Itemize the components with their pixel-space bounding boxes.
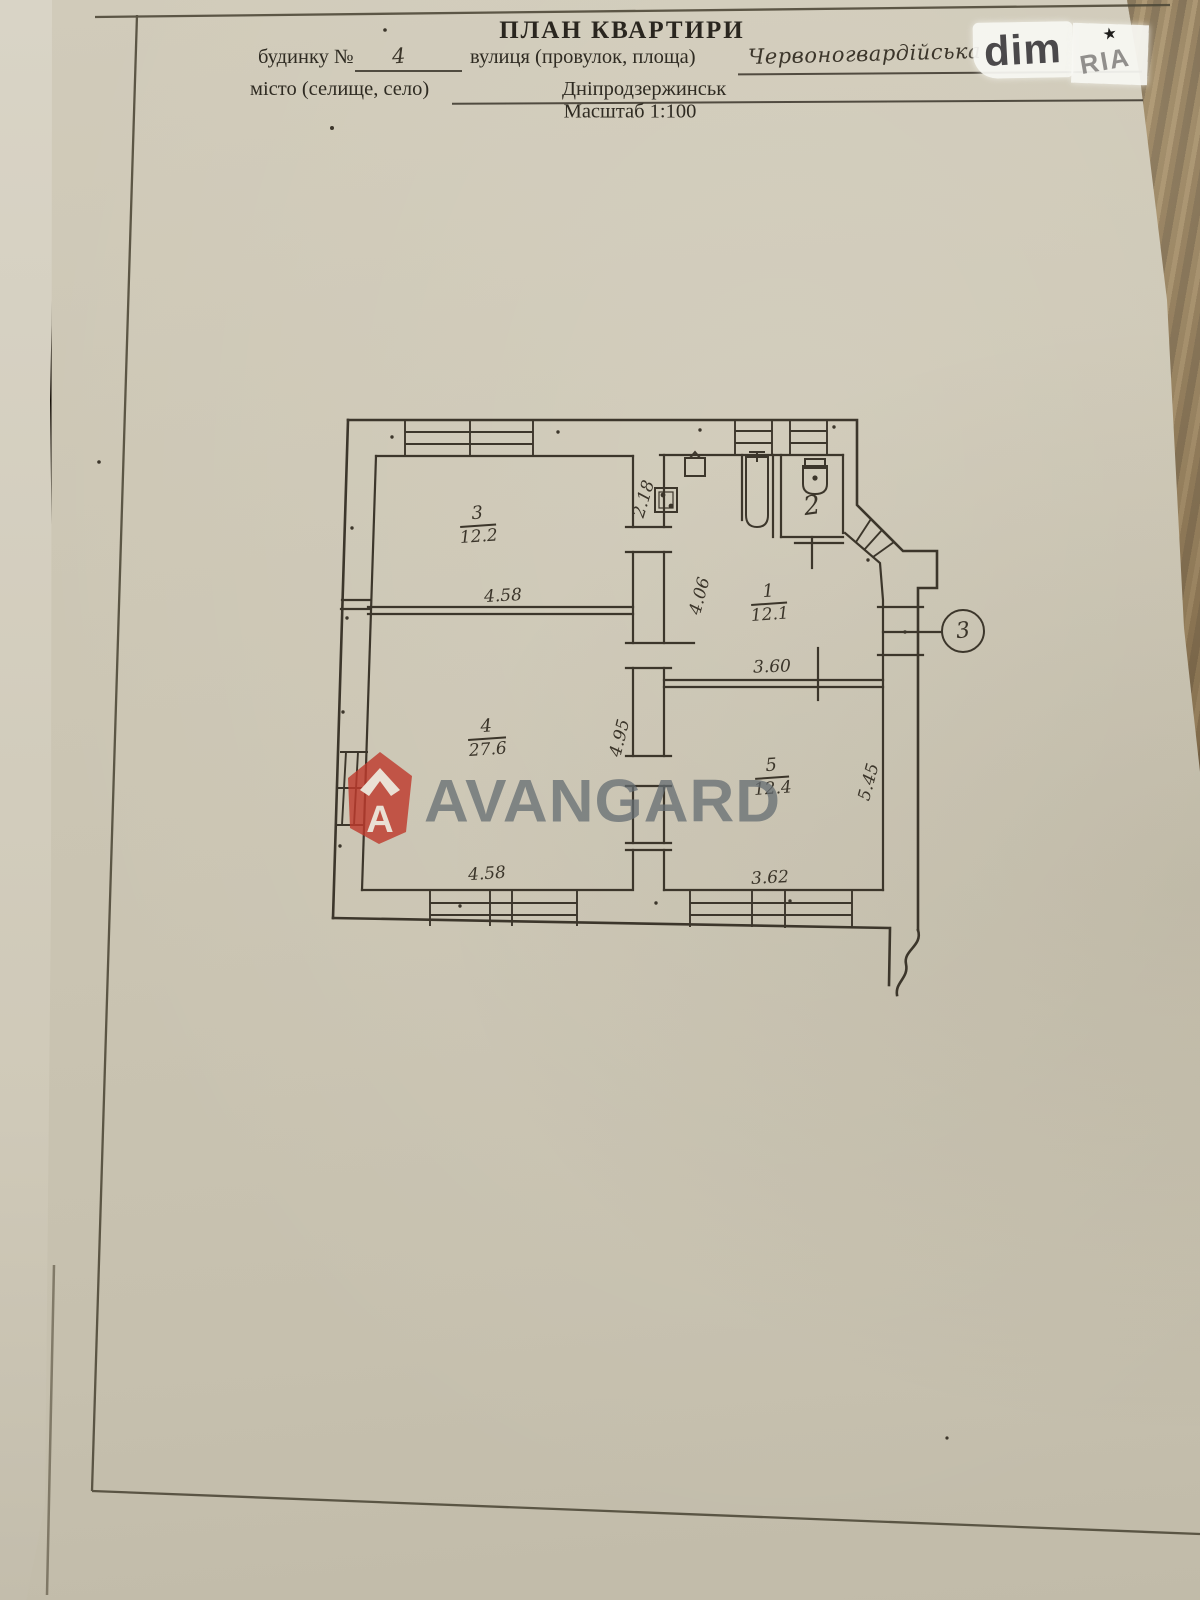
house-number-value: 4	[391, 44, 406, 69]
page-edge-shadow	[47, 1265, 54, 1595]
room-1-label: 1 12.1	[749, 581, 790, 624]
city-label: місто (селище, село)	[250, 78, 429, 101]
avangard-brand-text: AVANGARD	[424, 767, 781, 836]
dim-458-top: 4.58	[484, 585, 523, 607]
avangard-logo-letter: A	[366, 799, 393, 841]
star-icon: ★	[1101, 23, 1119, 45]
dim-badge-text: dim	[983, 24, 1063, 76]
dim-360: 3.60	[753, 656, 792, 677]
dim-458-bottom: 4.58	[467, 863, 506, 886]
city-name-value: Дніпродзержинськ	[562, 78, 726, 101]
street-label: вулиця (провулок, площа)	[470, 46, 696, 69]
toilet-cistern-icon	[685, 458, 705, 476]
document-title: ПЛАН КВАРТИРИ	[499, 17, 745, 45]
house-number-underline	[355, 70, 462, 72]
scale-label: Масштаб 1:100	[564, 101, 697, 124]
dim-362: 3.62	[751, 867, 790, 889]
avangard-watermark: A AVANGARD	[340, 742, 870, 852]
ria-badge: ★ RIA	[1071, 23, 1149, 86]
avangard-logo-icon: A	[340, 750, 420, 860]
ria-badge-text: RIA	[1077, 42, 1132, 81]
room-3-label: 3 12.2	[458, 503, 499, 546]
house-number-label: будинку №	[258, 46, 354, 69]
entrance-mark-value: 3	[955, 618, 972, 644]
ink-specks	[97, 28, 948, 1439]
room-2-label: 2	[802, 490, 823, 522]
dim-badge: dim	[973, 21, 1074, 79]
bathtub-icon	[746, 457, 768, 527]
